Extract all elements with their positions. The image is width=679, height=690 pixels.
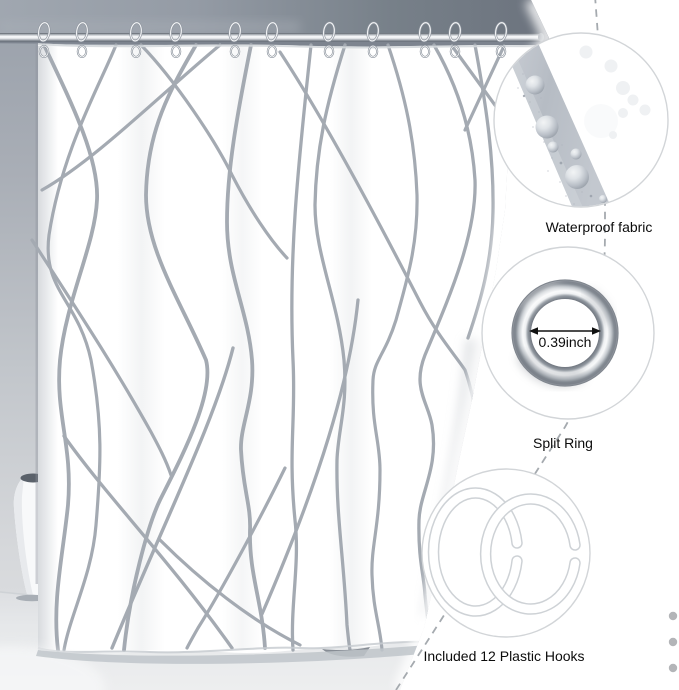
svg-text:Waterproof fabric: Waterproof fabric	[546, 219, 653, 235]
svg-text:Split Ring: Split Ring	[533, 435, 593, 451]
svg-text:0.39inch: 0.39inch	[539, 334, 592, 350]
svg-text:Included 12 Plastic Hooks: Included 12 Plastic Hooks	[423, 648, 584, 664]
